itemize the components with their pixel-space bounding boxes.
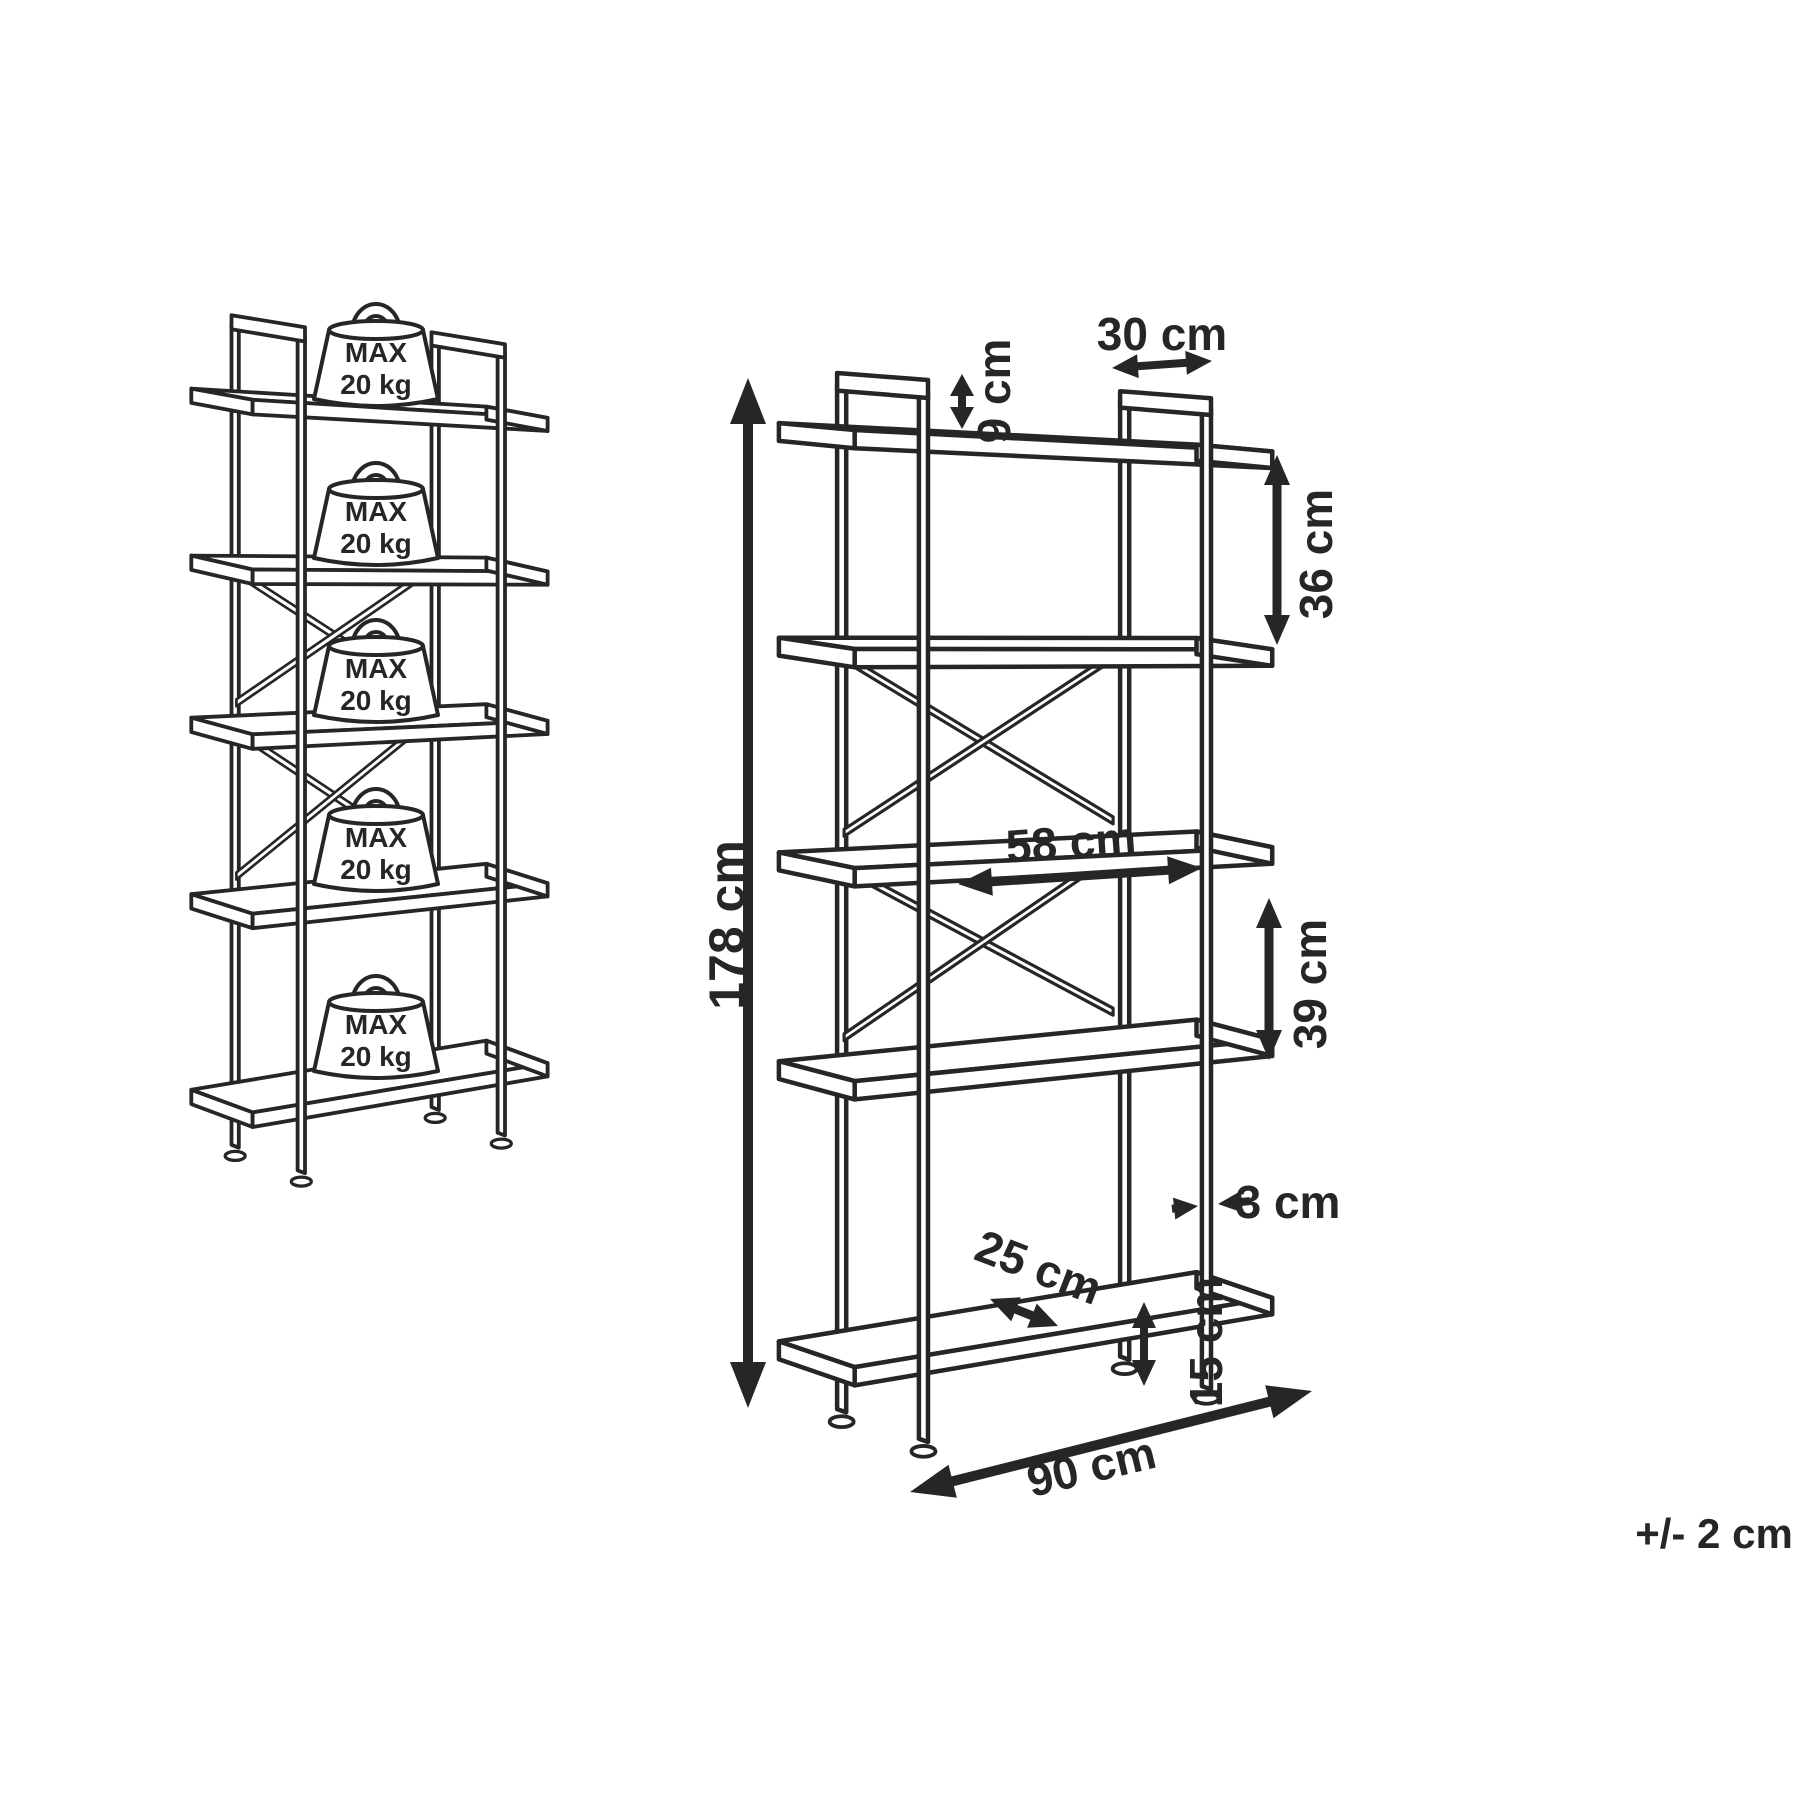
diagram-page: MAX 20 kg MAX 20 kg MAX 20 kg MAX 20 kg … <box>0 0 1800 1800</box>
weight-2-label-max: MAX <box>345 496 408 527</box>
dim-frame-depth-label: 30 cm <box>1097 308 1227 360</box>
weight-3-label-max: MAX <box>345 653 408 684</box>
dim-frame-thickness-label: 3 cm <box>1236 1176 1341 1228</box>
weight-4-label-kg: 20 kg <box>340 854 412 885</box>
weight-5-label-max: MAX <box>345 1009 408 1040</box>
weight-1-label-max: MAX <box>345 337 408 368</box>
weight-2-label-kg: 20 kg <box>340 528 412 559</box>
weight-3-label-kg: 20 kg <box>340 685 412 716</box>
dim-upper-gap-label: 36 cm <box>1290 489 1342 619</box>
dim-height-label: 178 cm <box>699 840 755 1010</box>
dim-lower-gap-label: 39 cm <box>1284 919 1336 1049</box>
dim-top-clearance-label: 9 cm <box>968 339 1020 444</box>
weight-4-label-max: MAX <box>345 822 408 853</box>
dim-bottom-clearance-label: 15 cm <box>1180 1277 1232 1407</box>
tolerance-note: +/- 2 cm <box>1635 1510 1793 1557</box>
dim-inner-width-label: 58 cm <box>1004 812 1138 873</box>
furniture-dimension-diagram: MAX 20 kg MAX 20 kg MAX 20 kg MAX 20 kg … <box>0 0 1800 1800</box>
weight-1-label-kg: 20 kg <box>340 369 412 400</box>
weight-5-label-kg: 20 kg <box>340 1041 412 1072</box>
